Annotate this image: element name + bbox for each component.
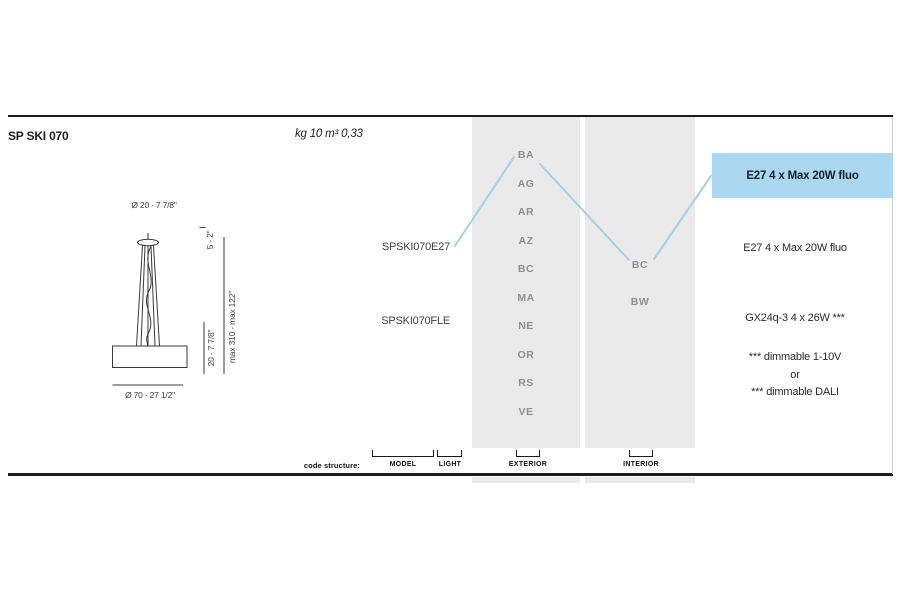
- bottom-rule: [8, 473, 893, 476]
- interior-code: BC: [585, 259, 695, 271]
- exterior-code: AR: [472, 206, 580, 218]
- exterior-code: VE: [472, 406, 580, 418]
- interior-code: BW: [585, 296, 695, 308]
- exterior-code: BA: [472, 149, 580, 161]
- interior-band-stub: [585, 477, 695, 483]
- dim-height-body: 20 - 7 7/8": [206, 330, 216, 367]
- interior-band: [585, 117, 695, 448]
- exterior-code: AG: [472, 178, 580, 190]
- lamping-note-1: *** dimmable 1-10V: [700, 351, 890, 363]
- exterior-code: BC: [472, 263, 580, 275]
- highlighted-lamping-box: E27 4 x Max 20W fluo: [712, 153, 893, 198]
- exterior-code: NE: [472, 320, 580, 332]
- dim-height-top: 5 - 2": [205, 231, 215, 250]
- top-rule: [8, 115, 893, 117]
- model-bracket: [372, 450, 434, 457]
- exterior-band: [472, 117, 580, 448]
- dim-top-diameter: Ø 20 - 7 7/8": [131, 200, 176, 210]
- segment-label-light: LIGHT: [439, 461, 462, 468]
- segment-label-model: MODEL: [390, 461, 417, 468]
- lamping-note-2: *** dimmable DALI: [700, 386, 890, 398]
- lamp-drawing: [95, 220, 245, 410]
- interior-bracket: [629, 450, 653, 457]
- spec-sheet-page: SP SKI 070 kg 10 m³ 0,33: [0, 0, 898, 598]
- segment-label-exterior: EXTERIOR: [509, 461, 547, 468]
- exterior-code: RS: [472, 377, 580, 389]
- weight-volume-text: kg 10 m³ 0,33: [295, 128, 363, 140]
- product-title: SP SKI 070: [8, 129, 69, 143]
- exterior-code: MA: [472, 292, 580, 304]
- dim-height-max: max 310 - max 122": [227, 291, 237, 363]
- code-structure-label: code structure:: [260, 461, 360, 470]
- lamping-fluo: GX24q-3 4 x 26W ***: [700, 312, 890, 324]
- exterior-bracket: [516, 450, 540, 457]
- model-code-fle: SPSKI070FLE: [340, 315, 450, 327]
- segment-label-interior: INTERIOR: [623, 461, 659, 468]
- light-bracket: [437, 450, 462, 457]
- model-code-e27: SPSKI070E27: [340, 241, 450, 253]
- lamping-e27: E27 4 x Max 20W fluo: [700, 242, 890, 254]
- exterior-code: OR: [472, 349, 580, 361]
- exterior-band-stub: [472, 477, 580, 483]
- highlighted-lamping-text: E27 4 x Max 20W fluo: [746, 170, 858, 182]
- dim-bottom-diameter: Ø 70 - 27 1/2": [125, 390, 175, 400]
- lamping-note-or: or: [700, 369, 890, 381]
- exterior-code: AZ: [472, 235, 580, 247]
